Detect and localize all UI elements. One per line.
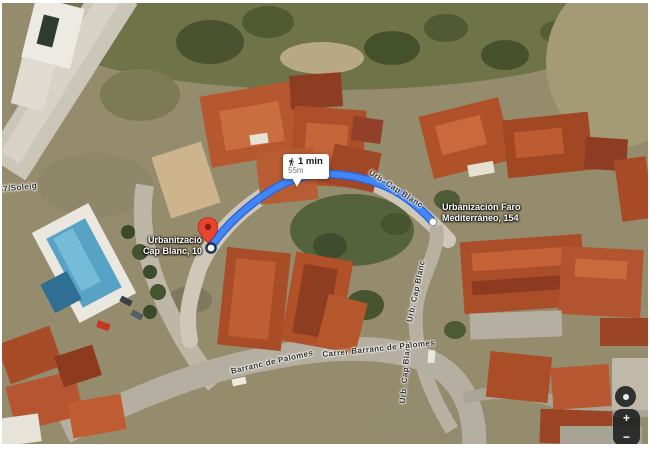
location-dot-icon (623, 394, 629, 400)
destination-label-line2: Cap Blanc, 10 (116, 246, 202, 257)
walking-icon (287, 157, 296, 167)
maps-screenshot: { "map": { "tooltip": { "duration": "1 m… (0, 0, 650, 450)
origin-label-line1: Urbanización Faro (442, 202, 521, 213)
destination-label-line1: Urbanització (116, 235, 202, 246)
route-distance: 55m (288, 167, 325, 175)
zoom-out-button[interactable]: − (613, 428, 640, 445)
origin-place-label[interactable]: Urbanización Faro Mediterráneo, 154 (442, 202, 521, 223)
route-duration-tooltip[interactable]: 1 min 55m (283, 154, 329, 179)
location-button[interactable] (615, 386, 636, 407)
destination-circle[interactable] (206, 243, 215, 252)
tooltip-tail (292, 178, 302, 187)
origin-label-line2: Mediterráneo, 154 (442, 213, 521, 224)
destination-place-label[interactable]: Urbanització Cap Blanc, 10 (116, 235, 202, 256)
route-layer (2, 3, 648, 444)
zoom-in-button[interactable]: + (613, 409, 640, 428)
zoom-control: + − (613, 409, 640, 444)
origin-dot[interactable] (429, 218, 436, 225)
satellite-map[interactable]: Urb. Cap Blanc Urb. Cap Blanc Urb. Cap B… (2, 3, 648, 444)
